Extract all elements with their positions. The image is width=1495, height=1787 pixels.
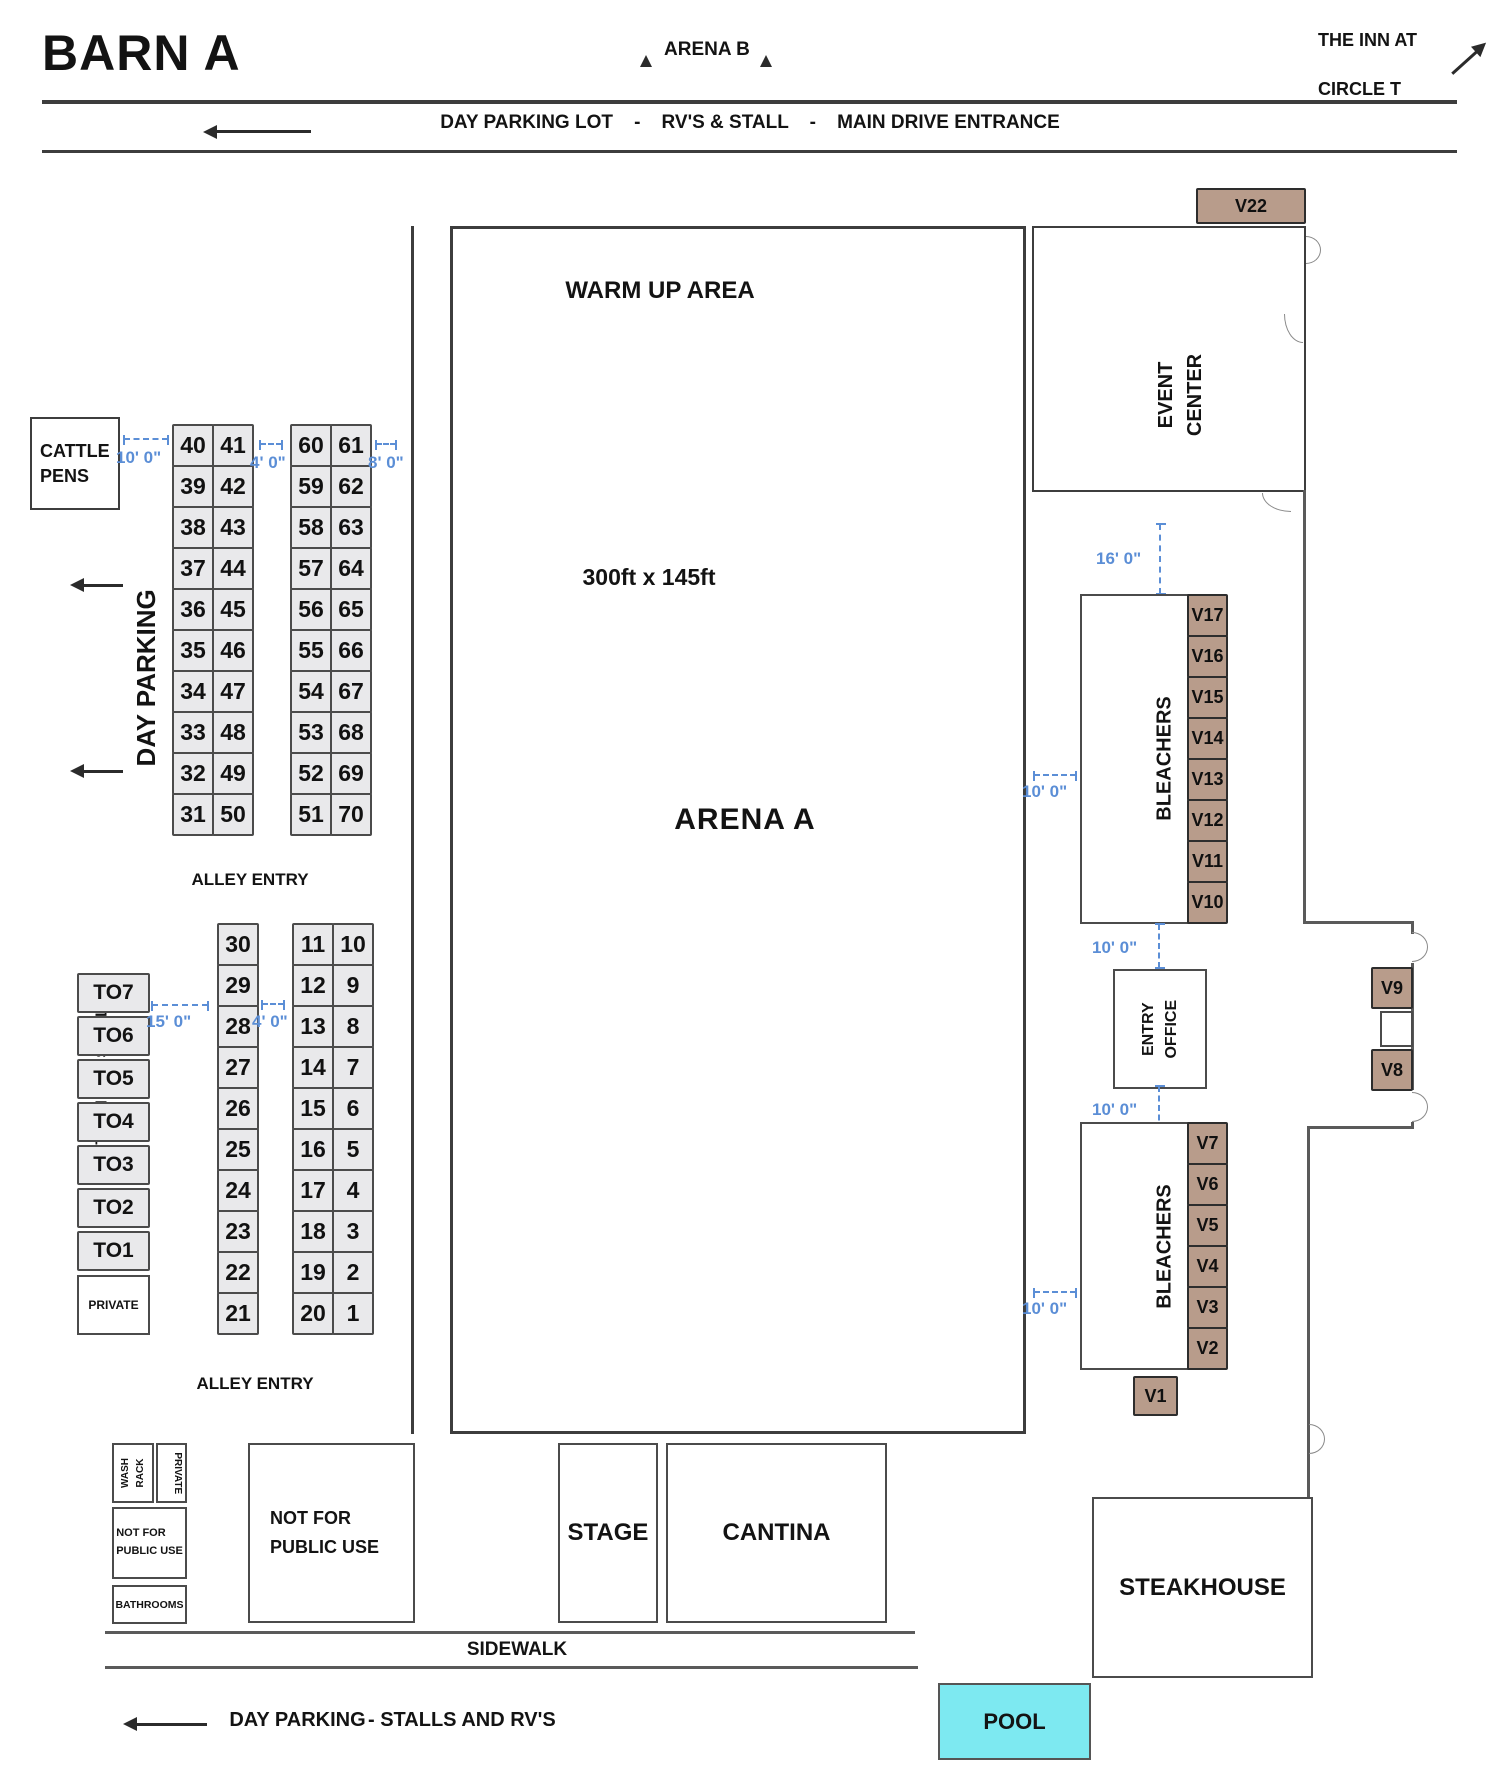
stall-row: 20 1	[292, 1292, 374, 1335]
stall-cell: 13	[292, 1005, 334, 1048]
arena-b-direction: ARENA B	[640, 38, 774, 62]
page-title: BARN A	[42, 24, 241, 82]
vendor-booth-cell: V4	[1187, 1245, 1228, 1288]
stall-cell: 58	[290, 506, 332, 549]
dim-10ft-label: 10' 0"	[1022, 1299, 1067, 1319]
left-arrow-icon	[70, 578, 123, 592]
stall-grid-21-30: 30 29 28 27 26 25 24 23 22 21	[217, 923, 259, 1335]
alley-entry-top-label: ALLEY ENTRY	[175, 868, 325, 892]
stall-grid-51-70: 60 61 59 62 58 63 57 64 56 65 55 66 54 6…	[290, 424, 372, 836]
stall-cell: 30	[217, 923, 259, 966]
stall-row: 22	[217, 1251, 259, 1294]
stall-cell: 69	[330, 752, 372, 795]
stall-row: 39 42	[172, 465, 254, 508]
barn-a-facility-map: BARN A ARENA B THE INN ATCIRCLE T DAY PA…	[0, 0, 1495, 1787]
day-parking-side-label: DAY PARKING	[58, 592, 134, 764]
stall-row: 40 41	[172, 424, 254, 467]
stall-cell: 27	[217, 1046, 259, 1089]
stall-cell: 59	[290, 465, 332, 508]
stall-cell: 60	[290, 424, 332, 467]
vendor-booth-cell: V2	[1187, 1327, 1228, 1370]
stall-cell: 7	[332, 1046, 374, 1089]
vendor-booth-v8: V8	[1371, 1049, 1413, 1091]
vendor-booth-cell: V12	[1187, 799, 1228, 842]
stall-cell: 63	[330, 506, 372, 549]
stall-cell: 29	[217, 964, 259, 1007]
stall-row: 34 47	[172, 670, 254, 713]
vendor-booth-v9: V9	[1371, 967, 1413, 1009]
return-alley-wall	[411, 226, 414, 1434]
dim-line-10ft	[124, 438, 168, 440]
stall-cell: 46	[212, 629, 254, 672]
stall-cell: 5	[332, 1128, 374, 1171]
turn-out-stalls-label: TURN OUT STALLS	[28, 995, 58, 1147]
not-for-public-use-small-box: NOT FOR PUBLIC USE	[112, 1507, 187, 1579]
stall-row: 55 66	[290, 629, 372, 672]
stall-row: 26	[217, 1087, 259, 1130]
stall-cell: 66	[330, 629, 372, 672]
sidewalk-line	[105, 1631, 915, 1634]
dim-4ft-label: 4' 0"	[252, 1012, 288, 1032]
vendor-booth-cell: V10	[1187, 881, 1228, 924]
vendor-booth-cell: V5	[1187, 1204, 1228, 1247]
open-parking-bottom-label: OPEN PARKING - NO TRAILERS	[1418, 1276, 1450, 1576]
wash-rack-label: WASH RACK	[112, 1443, 154, 1503]
vendor-booth-cell: V15	[1187, 676, 1228, 719]
double-door-icon	[1309, 1424, 1325, 1454]
vendor-booth-cell: V14	[1187, 717, 1228, 760]
stall-cell: 52	[290, 752, 332, 795]
alamo-walkway-box	[1380, 1011, 1413, 1047]
stall-cell: 62	[330, 465, 372, 508]
stall-row: 12 9	[292, 964, 374, 1007]
vendor-booth-cell: V7	[1187, 1122, 1228, 1165]
stall-cell: 50	[212, 793, 254, 836]
dim-line-10ft	[1034, 1291, 1076, 1293]
stall-grid-1-20: 11 10 12 9 13 8 14 7 15 6 16 5 17 4 18 3…	[292, 923, 374, 1335]
top-rule-2	[42, 150, 1457, 153]
not-for-public-use-small-label: NOT FOR PUBLIC USE	[116, 1525, 183, 1560]
sidewalk-line	[105, 1666, 918, 1669]
stall-cell: 64	[330, 547, 372, 590]
stall-row: 17 4	[292, 1169, 374, 1212]
stall-cell: 26	[217, 1087, 259, 1130]
stall-cell: 1	[332, 1292, 374, 1335]
private-stall-label: PRIVATE	[88, 1298, 138, 1312]
stall-cell: 57	[290, 547, 332, 590]
stall-cell: 11	[292, 923, 334, 966]
stage-label: STAGE	[568, 1519, 649, 1547]
dim-line-8ft	[376, 443, 396, 445]
stall-cell: 44	[212, 547, 254, 590]
top-rule	[42, 100, 1457, 104]
vendor-booth-v22: V22	[1196, 188, 1306, 224]
alley-entry-bottom-label: ALLEY ENTRY	[180, 1372, 330, 1396]
steakhouse-label: STEAKHOUSE	[1119, 1574, 1286, 1602]
arena-size-label: 300ft x 145ft	[544, 562, 754, 592]
stall-row: 13 8	[292, 1005, 374, 1048]
not-for-public-use-big-box: NOT FOR PUBLIC USE	[248, 1443, 415, 1623]
vendor-booths-v10-v17: V17V16V15V14V13V12V11V10	[1187, 594, 1228, 924]
stall-cell: 47	[212, 670, 254, 713]
dim-line-4ft	[262, 1003, 284, 1005]
stall-row: 60 61	[290, 424, 372, 467]
stall-cell: 14	[292, 1046, 334, 1089]
dim-16ft-label: 16' 0"	[1096, 549, 1141, 569]
dim-line-10ft	[1158, 924, 1160, 968]
vendor-booths-v2-v7: V7V6V5V4V3V2	[1187, 1122, 1228, 1370]
stall-row: 51 70	[290, 793, 372, 836]
dim-10ft-label: 10' 0"	[1092, 1100, 1137, 1120]
stall-cell: 56	[290, 588, 332, 631]
stall-row: 54 67	[290, 670, 372, 713]
stall-grid-31-50: 40 41 39 42 38 43 37 44 36 45 35 46 34 4…	[172, 424, 254, 836]
bleachers-bottom-label: BLEACHERS	[1103, 1176, 1147, 1316]
corridor-wall	[1308, 1126, 1414, 1129]
main-drive-route-label: DAY PARKING LOT - RV'S & STALL - MAIN DR…	[320, 110, 1180, 136]
vendor-booth-cell: V3	[1187, 1286, 1228, 1329]
stall-cell: 4	[332, 1169, 374, 1212]
stall-cell: 3	[332, 1210, 374, 1253]
stall-row: 15 6	[292, 1087, 374, 1130]
cattle-pens-label: CATTLE PENS	[40, 439, 118, 488]
right-wall	[1303, 490, 1306, 924]
double-door-icon	[1306, 236, 1321, 264]
stall-row: 14 7	[292, 1046, 374, 1089]
stall-cell: 9	[332, 964, 374, 1007]
stall-cell: 25	[217, 1128, 259, 1171]
alamo-entrance-door-icon	[1412, 932, 1428, 962]
sidewalk-label: SIDEWALK	[452, 1637, 582, 1663]
door-arc-icon	[1262, 493, 1291, 512]
turn-out-stall-list: TO7TO6TO5TO4TO3TO2TO1	[77, 973, 150, 1271]
turn-out-stall-cell: TO2	[77, 1188, 150, 1228]
stall-cell: 12	[292, 964, 334, 1007]
stall-row: 21	[217, 1292, 259, 1335]
warm-up-area-label: WARM UP AREA	[540, 276, 780, 306]
double-door-icon	[1412, 1092, 1428, 1122]
cattle-pens-box: CATTLE PENS	[30, 417, 120, 510]
stall-cell: 6	[332, 1087, 374, 1130]
stall-cell: 41	[212, 424, 254, 467]
stalls-and-rvs-label: - STALLS AND RV'S	[368, 1706, 628, 1734]
not-for-public-use-big-label: NOT FOR PUBLIC USE	[270, 1504, 413, 1562]
stall-cell: 19	[292, 1251, 334, 1294]
bathrooms-box: BATHROOMS	[112, 1585, 187, 1624]
left-arrow-icon	[203, 124, 311, 139]
stall-cell: 10	[332, 923, 374, 966]
stall-cell: 32	[172, 752, 214, 795]
turn-out-stall-cell: TO1	[77, 1231, 150, 1271]
vendor-booth-cell: V16	[1187, 635, 1228, 678]
event-center-label: EVENT CENTER	[1140, 300, 1220, 490]
turn-out-stall-cell: TO6	[77, 1016, 150, 1056]
alamo-entrance-label: ALAMO ENTRANCE	[1452, 924, 1484, 1110]
stall-cell: 39	[172, 465, 214, 508]
stall-row: 32 49	[172, 752, 254, 795]
stall-cell: 67	[330, 670, 372, 713]
stall-cell: 51	[290, 793, 332, 836]
stall-cell: 20	[292, 1292, 334, 1335]
pool-box: POOL	[938, 1683, 1091, 1760]
stall-cell: 65	[330, 588, 372, 631]
stall-cell: 68	[330, 711, 372, 754]
stall-row: 30	[217, 923, 259, 966]
entry-office-label: ENTRY OFFICE	[1121, 975, 1199, 1083]
turn-out-stall-cell: TO7	[77, 973, 150, 1013]
arena-a-label: ARENA A	[650, 800, 840, 840]
stall-row: 31 50	[172, 793, 254, 836]
dim-line-16ft	[1159, 524, 1161, 594]
stall-cell: 48	[212, 711, 254, 754]
bathrooms-label: BATHROOMS	[115, 1599, 183, 1611]
stall-cell: 17	[292, 1169, 334, 1212]
stall-row: 52 69	[290, 752, 372, 795]
left-arrow-icon	[123, 1717, 207, 1731]
vendor-booth-cell: V11	[1187, 840, 1228, 883]
dim-15ft-label: 15' 0"	[146, 1012, 191, 1032]
turn-out-stall-cell: TO3	[77, 1145, 150, 1185]
stall-cell: 24	[217, 1169, 259, 1212]
stall-row: 53 68	[290, 711, 372, 754]
stall-row: 16 5	[292, 1128, 374, 1171]
dim-line-4ft	[260, 443, 282, 445]
stall-cell: 34	[172, 670, 214, 713]
stall-cell: 22	[217, 1251, 259, 1294]
dim-10ft-label: 10' 0"	[1092, 938, 1137, 958]
stall-cell: 2	[332, 1251, 374, 1294]
stall-row: 36 45	[172, 588, 254, 631]
corridor-wall	[1303, 921, 1413, 924]
vendor-booth-cell: V6	[1187, 1163, 1228, 1206]
stall-row: 56 65	[290, 588, 372, 631]
day-parking-bottom-label: DAY PARKING	[215, 1706, 380, 1734]
dim-10ft-label: 10' 0"	[116, 448, 161, 468]
stall-cell: 53	[290, 711, 332, 754]
stall-cell: 37	[172, 547, 214, 590]
open-parking-top-label: OPEN PARKING - NO TRAILERS	[1420, 400, 1452, 672]
dim-8ft-label: 8' 0"	[368, 453, 404, 473]
stall-row: 19 2	[292, 1251, 374, 1294]
stall-cell: 55	[290, 629, 332, 672]
stall-row: 29	[217, 964, 259, 1007]
turn-out-stall-cell: TO4	[77, 1102, 150, 1142]
cantina-label: CANTINA	[723, 1519, 831, 1547]
turn-out-stall-cell: TO5	[77, 1059, 150, 1099]
private-small-label: PRIVATE	[156, 1443, 187, 1503]
stall-row: 35 46	[172, 629, 254, 672]
stall-cell: 16	[292, 1128, 334, 1171]
up-arrow-icon	[640, 38, 654, 62]
stall-row: 38 43	[172, 506, 254, 549]
vendor-booth-v1: V1	[1133, 1376, 1178, 1416]
return-alley-label: RETURN ALLEY	[407, 662, 453, 812]
stall-cell: 49	[212, 752, 254, 795]
steakhouse-box: STEAKHOUSE	[1092, 1497, 1313, 1678]
stall-cell: 31	[172, 793, 214, 836]
cantina-box: CANTINA	[666, 1443, 887, 1623]
stall-cell: 43	[212, 506, 254, 549]
stage-box: STAGE	[558, 1443, 658, 1623]
stall-cell: 21	[217, 1292, 259, 1335]
stall-cell: 54	[290, 670, 332, 713]
stall-row: 24	[217, 1169, 259, 1212]
dim-10ft-label: 10' 0"	[1022, 782, 1067, 802]
private-stall-box: PRIVATE	[77, 1275, 150, 1335]
left-arrow-icon	[70, 764, 123, 778]
stall-cell: 40	[172, 424, 214, 467]
stall-row: 18 3	[292, 1210, 374, 1253]
stall-cell: 35	[172, 629, 214, 672]
stall-cell: 36	[172, 588, 214, 631]
stall-cell: 38	[172, 506, 214, 549]
stall-row: 59 62	[290, 465, 372, 508]
stall-row: 33 48	[172, 711, 254, 754]
stall-cell: 15	[292, 1087, 334, 1130]
dim-4ft-label: 4' 0"	[250, 453, 286, 473]
stall-cell: 42	[212, 465, 254, 508]
stall-row: 57 64	[290, 547, 372, 590]
stall-cell: 70	[330, 793, 372, 836]
stall-cell: 8	[332, 1005, 374, 1048]
stall-cell: 18	[292, 1210, 334, 1253]
stall-cell: 45	[212, 588, 254, 631]
stall-cell: 33	[172, 711, 214, 754]
dim-line-15ft	[152, 1004, 208, 1006]
stall-row: 37 44	[172, 547, 254, 590]
pool-label: POOL	[983, 1709, 1045, 1735]
bleachers-top-label: BLEACHERS	[1103, 688, 1147, 828]
stall-cell: 61	[330, 424, 372, 467]
stall-row: 23	[217, 1210, 259, 1253]
vendor-booth-cell: V13	[1187, 758, 1228, 801]
stall-cell: 23	[217, 1210, 259, 1253]
stall-row: 11 10	[292, 923, 374, 966]
stall-row: 25	[217, 1128, 259, 1171]
inn-at-circle-t-label: THE INN ATCIRCLE T	[1318, 28, 1448, 101]
dim-line-10ft	[1034, 774, 1076, 776]
stall-row: 58 63	[290, 506, 372, 549]
arena-b-label: ARENA B	[664, 39, 750, 61]
up-arrow-icon	[760, 38, 774, 62]
stall-row: 27	[217, 1046, 259, 1089]
vendor-booth-cell: V17	[1187, 594, 1228, 637]
